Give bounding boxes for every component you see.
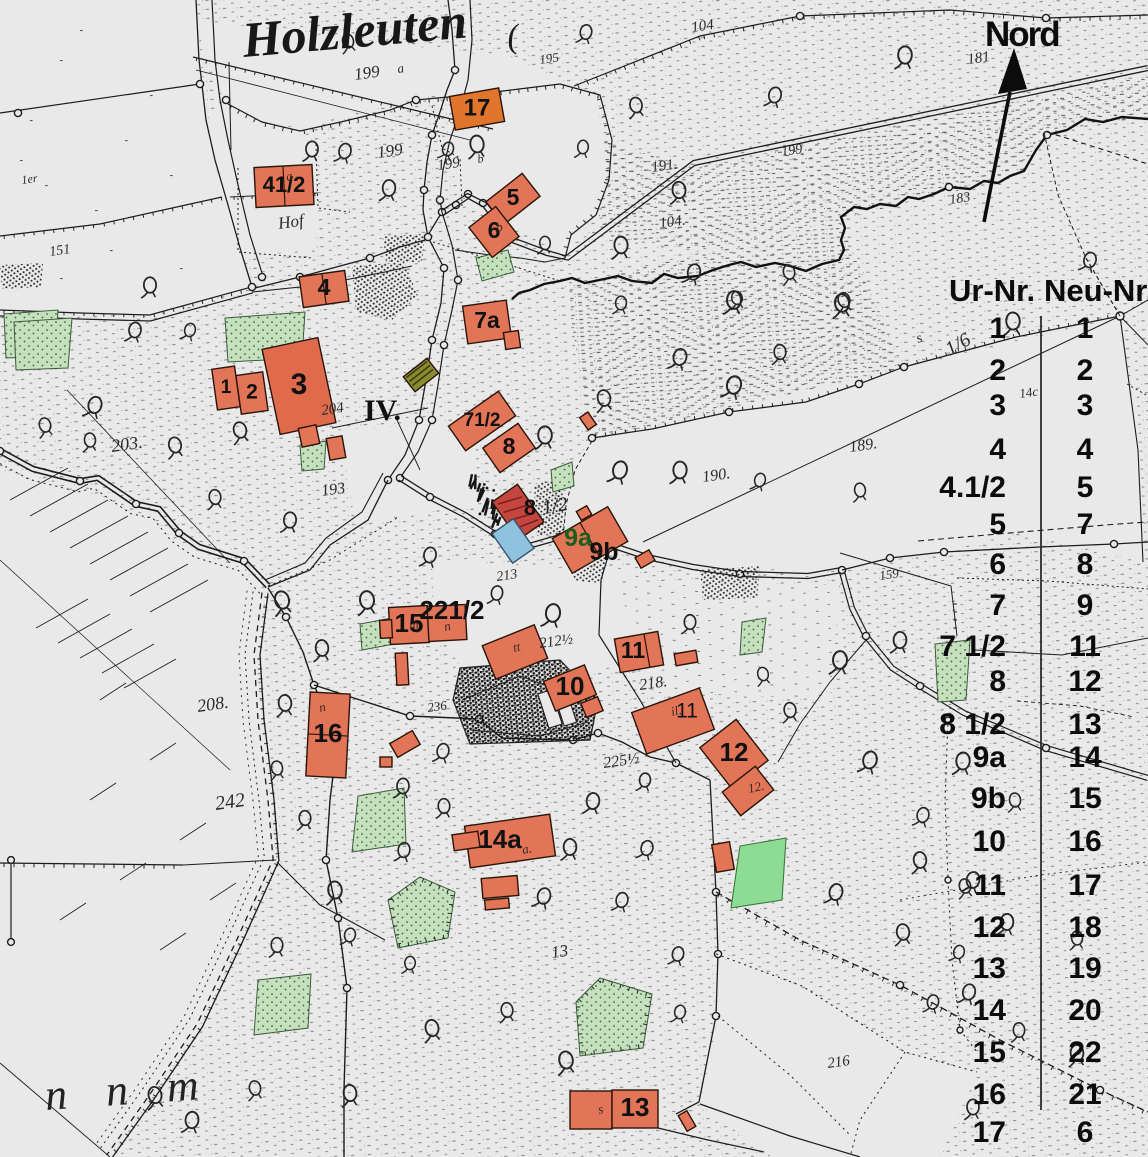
- svg-text:13: 13: [550, 941, 569, 962]
- svg-text:7: 7: [989, 589, 1006, 622]
- svg-text:11: 11: [1069, 630, 1101, 663]
- svg-text:193: 193: [320, 480, 346, 500]
- svg-text:14: 14: [1068, 741, 1102, 774]
- svg-text:199: 199: [780, 142, 803, 160]
- svg-text:13: 13: [1068, 708, 1101, 741]
- svg-text:7 1/2: 7 1/2: [939, 630, 1006, 663]
- svg-text:216: 216: [826, 1053, 851, 1072]
- svg-text:10: 10: [556, 671, 585, 701]
- svg-text:5: 5: [989, 508, 1006, 541]
- svg-text:199: 199: [353, 62, 381, 84]
- svg-text:19: 19: [1068, 952, 1101, 985]
- svg-text:41/2: 41/2: [263, 172, 306, 197]
- svg-text:236: 236: [426, 697, 448, 715]
- svg-text:7: 7: [1077, 508, 1094, 541]
- svg-text:16: 16: [1068, 825, 1101, 858]
- svg-text:20: 20: [1068, 994, 1101, 1027]
- svg-text:4: 4: [989, 433, 1006, 466]
- svg-text:9a: 9a: [973, 741, 1007, 774]
- svg-text:3: 3: [989, 389, 1006, 422]
- svg-text:242: 242: [214, 789, 247, 815]
- svg-text:8 1/2: 8 1/2: [939, 708, 1006, 741]
- svg-text:11: 11: [974, 869, 1006, 902]
- svg-text:17: 17: [464, 94, 491, 121]
- svg-text:17: 17: [1068, 869, 1101, 902]
- svg-text:8: 8: [989, 665, 1006, 698]
- svg-text:9: 9: [1077, 589, 1094, 622]
- svg-text:16: 16: [973, 1078, 1006, 1111]
- svg-text:22: 22: [1068, 1036, 1101, 1069]
- svg-text:1: 1: [989, 312, 1006, 345]
- svg-text:10: 10: [973, 825, 1006, 858]
- svg-text:6: 6: [1077, 1116, 1094, 1149]
- svg-text:213: 213: [495, 567, 518, 585]
- svg-text:5: 5: [507, 184, 520, 210]
- svg-text:1: 1: [1077, 312, 1094, 345]
- svg-text:3: 3: [291, 368, 308, 401]
- svg-text:12: 12: [973, 911, 1006, 944]
- svg-text:4: 4: [1077, 433, 1094, 466]
- svg-text:8: 8: [503, 433, 516, 459]
- svg-text:15: 15: [973, 1036, 1006, 1069]
- svg-text:183: 183: [948, 190, 971, 208]
- svg-text:199: 199: [376, 140, 404, 162]
- svg-text:1er: 1er: [20, 171, 38, 187]
- svg-text:13: 13: [621, 1092, 650, 1122]
- svg-text:1/2: 1/2: [540, 493, 569, 519]
- svg-text:195: 195: [538, 49, 560, 67]
- svg-text:Ur-Nr.: Ur-Nr.: [949, 273, 1035, 308]
- svg-text:6: 6: [989, 548, 1006, 581]
- svg-text:Neu-Nr.: Neu-Nr.: [1044, 273, 1148, 308]
- svg-text:Nord: Nord: [985, 15, 1059, 54]
- svg-text:71/2: 71/2: [464, 410, 501, 431]
- svg-text:8: 8: [524, 495, 536, 520]
- svg-text:2: 2: [246, 381, 258, 404]
- svg-text:IV.: IV.: [364, 394, 401, 427]
- svg-text:221/2: 221/2: [419, 595, 484, 625]
- svg-text:4: 4: [318, 274, 331, 300]
- svg-text:3: 3: [1077, 389, 1094, 422]
- svg-text:8: 8: [1077, 548, 1094, 581]
- svg-text:199: 199: [436, 155, 461, 174]
- svg-text:4.1/2: 4.1/2: [939, 471, 1006, 504]
- svg-text:2: 2: [989, 354, 1006, 387]
- svg-text:5: 5: [1077, 471, 1094, 504]
- svg-text:9b: 9b: [589, 538, 618, 566]
- svg-text:13: 13: [973, 952, 1006, 985]
- svg-text:204: 204: [320, 400, 345, 419]
- svg-text:14: 14: [973, 994, 1007, 1027]
- svg-text:159: 159: [878, 565, 900, 583]
- svg-text:21: 21: [1068, 1078, 1101, 1111]
- svg-text:104: 104: [690, 17, 715, 36]
- svg-text:9b: 9b: [971, 782, 1006, 815]
- svg-text:18: 18: [1068, 911, 1101, 944]
- svg-text:Hof: Hof: [276, 210, 307, 233]
- svg-text:14a: 14a: [478, 824, 522, 854]
- svg-text:11: 11: [621, 637, 646, 663]
- svg-text:14c: 14c: [1018, 383, 1039, 400]
- svg-text:12: 12: [1068, 665, 1101, 698]
- svg-text:1: 1: [221, 377, 232, 398]
- svg-text:2: 2: [1077, 354, 1094, 387]
- svg-text:7a: 7a: [474, 307, 500, 333]
- svg-text:16: 16: [314, 718, 343, 748]
- svg-text:15: 15: [1068, 782, 1101, 815]
- svg-text:17: 17: [973, 1116, 1006, 1149]
- svg-text:12: 12: [720, 737, 749, 767]
- svg-text:151: 151: [48, 242, 71, 260]
